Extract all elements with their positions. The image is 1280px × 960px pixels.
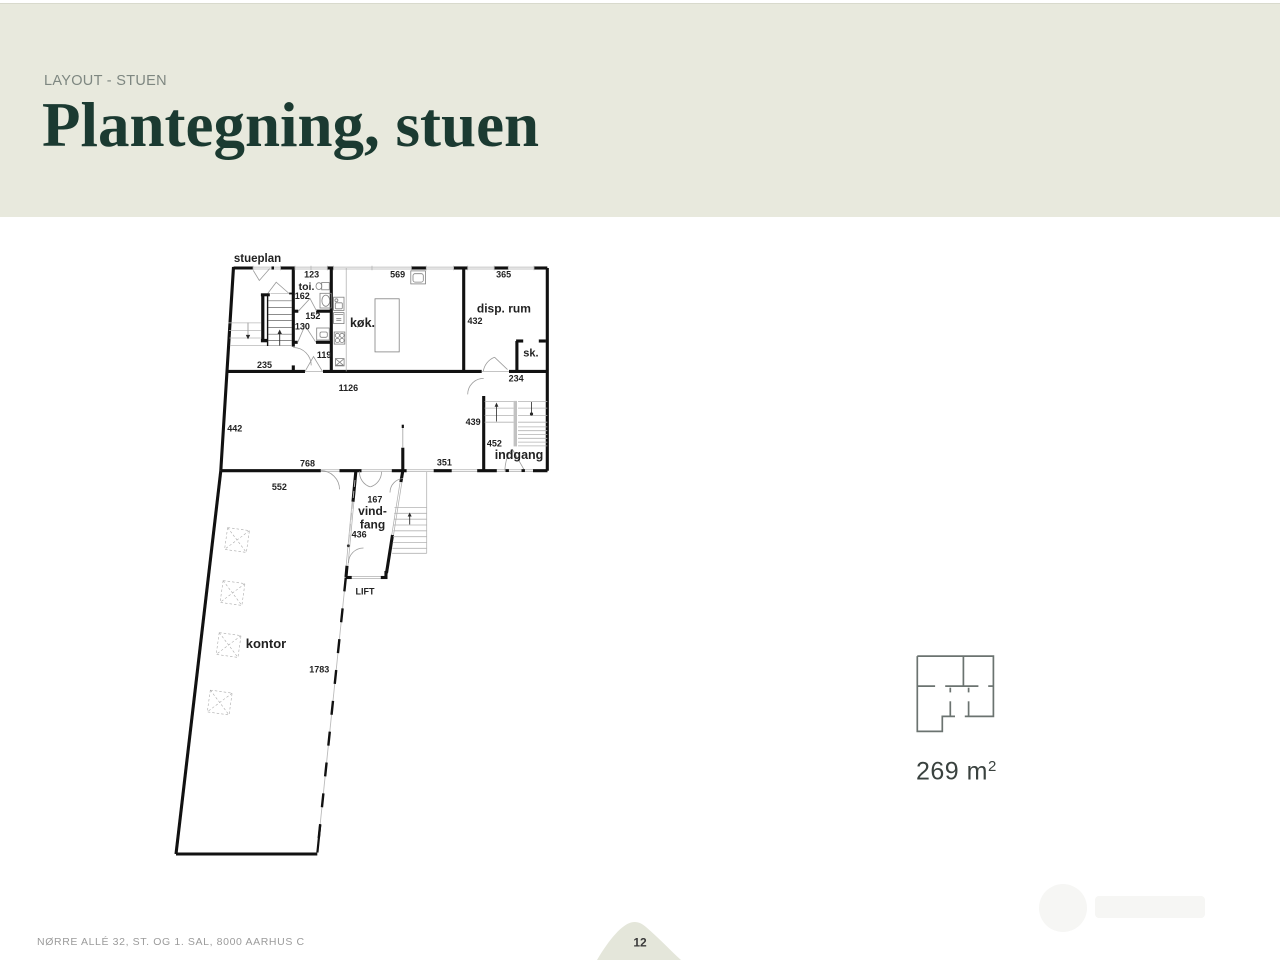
svg-text:130: 130 [295,322,310,332]
svg-text:152: 152 [305,311,320,321]
svg-text:119: 119 [317,350,332,360]
svg-text:442: 442 [227,423,242,433]
svg-text:768: 768 [300,459,315,469]
svg-text:436: 436 [352,530,367,540]
svg-text:235: 235 [257,360,272,370]
svg-text:167: 167 [367,494,382,504]
svg-text:569: 569 [390,270,405,280]
svg-text:351: 351 [437,458,452,468]
svg-text:indgang: indgang [495,448,544,462]
svg-text:123: 123 [304,270,319,280]
svg-text:439: 439 [466,417,481,427]
svg-text:162: 162 [295,291,310,301]
svg-text:12: 12 [633,936,647,950]
svg-text:køk.: køk. [350,316,375,330]
svg-text:sk.: sk. [523,347,538,359]
svg-text:269 m2: 269 m2 [916,758,997,786]
svg-text:stueplan: stueplan [234,253,281,265]
svg-text:1783: 1783 [309,664,329,674]
svg-text:365: 365 [496,270,511,280]
svg-text:LIFT: LIFT [356,587,375,597]
svg-text:disp. rum: disp. rum [477,302,531,316]
svg-text:432: 432 [467,316,482,326]
svg-text:vind-: vind- [358,504,387,518]
svg-text:234: 234 [509,373,524,383]
svg-text:1126: 1126 [339,383,359,393]
svg-text:kontor: kontor [246,636,286,651]
svg-text:552: 552 [272,482,287,492]
